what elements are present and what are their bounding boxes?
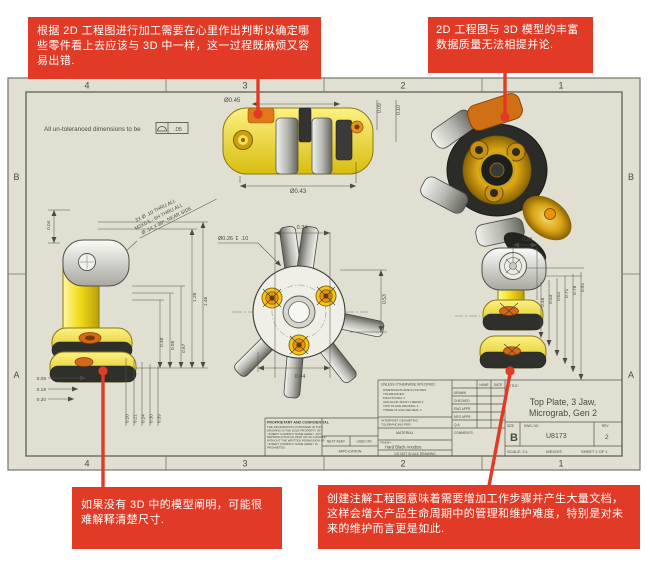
zone-bottom-4: 4 (84, 459, 89, 469)
dim: 0.39 (157, 414, 162, 423)
zone-left-A: A (13, 370, 19, 380)
dim: 0.19 (37, 387, 47, 393)
do-not-scale: DO NOT SCALE DRAWING (394, 452, 436, 456)
dim: 0.78 (572, 285, 578, 295)
dim: 0.08 (37, 376, 47, 382)
approval-row: MFG APPR. (454, 415, 471, 419)
dim: 1.46 (203, 296, 209, 306)
sheet-count: SHEET 1 OF 1 (581, 449, 608, 454)
next-assy-label: NEXT ASSY (327, 440, 346, 444)
size-label: SIZE (507, 424, 514, 428)
note-text: All un-toleranced dimensions to be (44, 126, 141, 133)
finish-value: Hard Black Anodize (385, 445, 422, 450)
dim: 0.67 (181, 343, 187, 353)
rev-value: 2 (605, 434, 609, 441)
page: 4 3 2 1 4 3 2 1 B A B A All un-tolerance… (0, 0, 650, 562)
engineering-drawing-sheet: 4 3 2 1 4 3 2 1 B A B A All un-tolerance… (0, 0, 650, 562)
callout-bottom-left: 如果没有 3D 中的模型阐明，可能很难解释清楚尺寸. (72, 487, 282, 549)
approval-row: Q.A. (454, 423, 460, 427)
zone-top-2: 2 (400, 81, 405, 91)
zone-right-A: A (628, 370, 634, 380)
dwg-no-value: U8173 (546, 433, 567, 440)
dim: 0.61 (556, 291, 562, 301)
dim: 0.53 (382, 294, 388, 304)
drawing-title-line1: Top Plate, 3 Jaw, (530, 397, 597, 407)
dim: 0.21 (133, 414, 138, 423)
dim: 0.53 (548, 294, 554, 304)
dwg-no-label: DWG. NO. (524, 424, 539, 428)
approval-row: DRAWN (454, 391, 467, 395)
zone-top-4: 4 (84, 81, 89, 91)
zone-bottom-3: 3 (242, 459, 247, 469)
zone-top-3: 3 (242, 81, 247, 91)
dim: 0.48 (159, 337, 165, 347)
dim: 0.24 (141, 414, 146, 423)
dim: 0.20 (37, 397, 47, 403)
callout-bottom-right: 创建注解工程图意味着需要增加工作步骤并产生大量文档，这样会增大产品生命周期中的管… (318, 485, 640, 549)
size-value: B (510, 432, 518, 444)
dim-r1: 0.09 (377, 103, 383, 113)
zone-right-B: B (628, 172, 634, 182)
dim: 0.59 (170, 340, 176, 350)
approval-row: COMMENTS: (454, 431, 474, 435)
proprietary-line: PROHIBITED. (267, 445, 286, 449)
zone-top-1: 1 (558, 81, 563, 91)
scale-value: SCALE: 2:1 (507, 449, 529, 454)
dim: 0.20 (522, 237, 532, 243)
dim: 0.30 (149, 414, 154, 423)
callout-top-left: 根据 2D 工程图进行加工需要在心里作出判断以确定哪些零件看上去应该与 3D 中… (28, 17, 321, 79)
rev-label: REV (602, 424, 609, 428)
dim: 0.44 (295, 374, 306, 380)
approval-row: ENG APPR. (454, 407, 471, 411)
dim-dia-top: Ø0.45 (224, 98, 241, 104)
note-tolerance: .05 (174, 127, 182, 133)
dim-dia-bottom: Ø0.43 (290, 189, 307, 195)
callout-top-right: 2D 工程图与 3D 模型的丰富数据质量无法相提并论. (428, 17, 593, 73)
dim: 0.34 (297, 225, 308, 231)
dim: 0.20 (125, 414, 130, 423)
leader-dot-top-right (500, 112, 509, 121)
zone-bottom-2: 2 (400, 459, 405, 469)
leader-dot-bottom-left (98, 366, 107, 375)
name-header: NAME (479, 383, 489, 387)
unless-label: UNLESS OTHERWISE SPECIFIED: (381, 383, 436, 387)
interpret-line: TOLERANCING PER: (381, 423, 412, 427)
dim: 0.91 (580, 282, 586, 292)
dim: 0.04 (46, 220, 52, 230)
tol-line: THREE PLACE DECIMAL ± (383, 408, 422, 412)
used-on-label: USED ON (356, 440, 372, 444)
leader-dot-top-left (253, 109, 262, 118)
material-label: MATERIAL (396, 431, 414, 435)
drawing-title-line2: Micrograb, Gen 2 (529, 408, 597, 418)
dim-r2: 0.10 (396, 105, 402, 115)
dim: 1.28 (192, 292, 198, 302)
dim: 0.71 (564, 288, 570, 298)
date-header: DATE (494, 383, 503, 387)
approval-row: CHECKED (454, 399, 470, 403)
application-label: APPLICATION (339, 450, 362, 454)
weight-label: WEIGHT: (546, 449, 563, 454)
zone-bottom-1: 1 (558, 459, 563, 469)
dim-cbore: Ø0.26 ↧ .10 (218, 235, 248, 242)
proprietary-title: PROPRIETARY AND CONFIDENTIAL (267, 421, 330, 425)
zone-left-B: B (13, 172, 19, 182)
leader-dot-bottom-right (505, 366, 514, 375)
dim: 0.48 (540, 297, 546, 307)
